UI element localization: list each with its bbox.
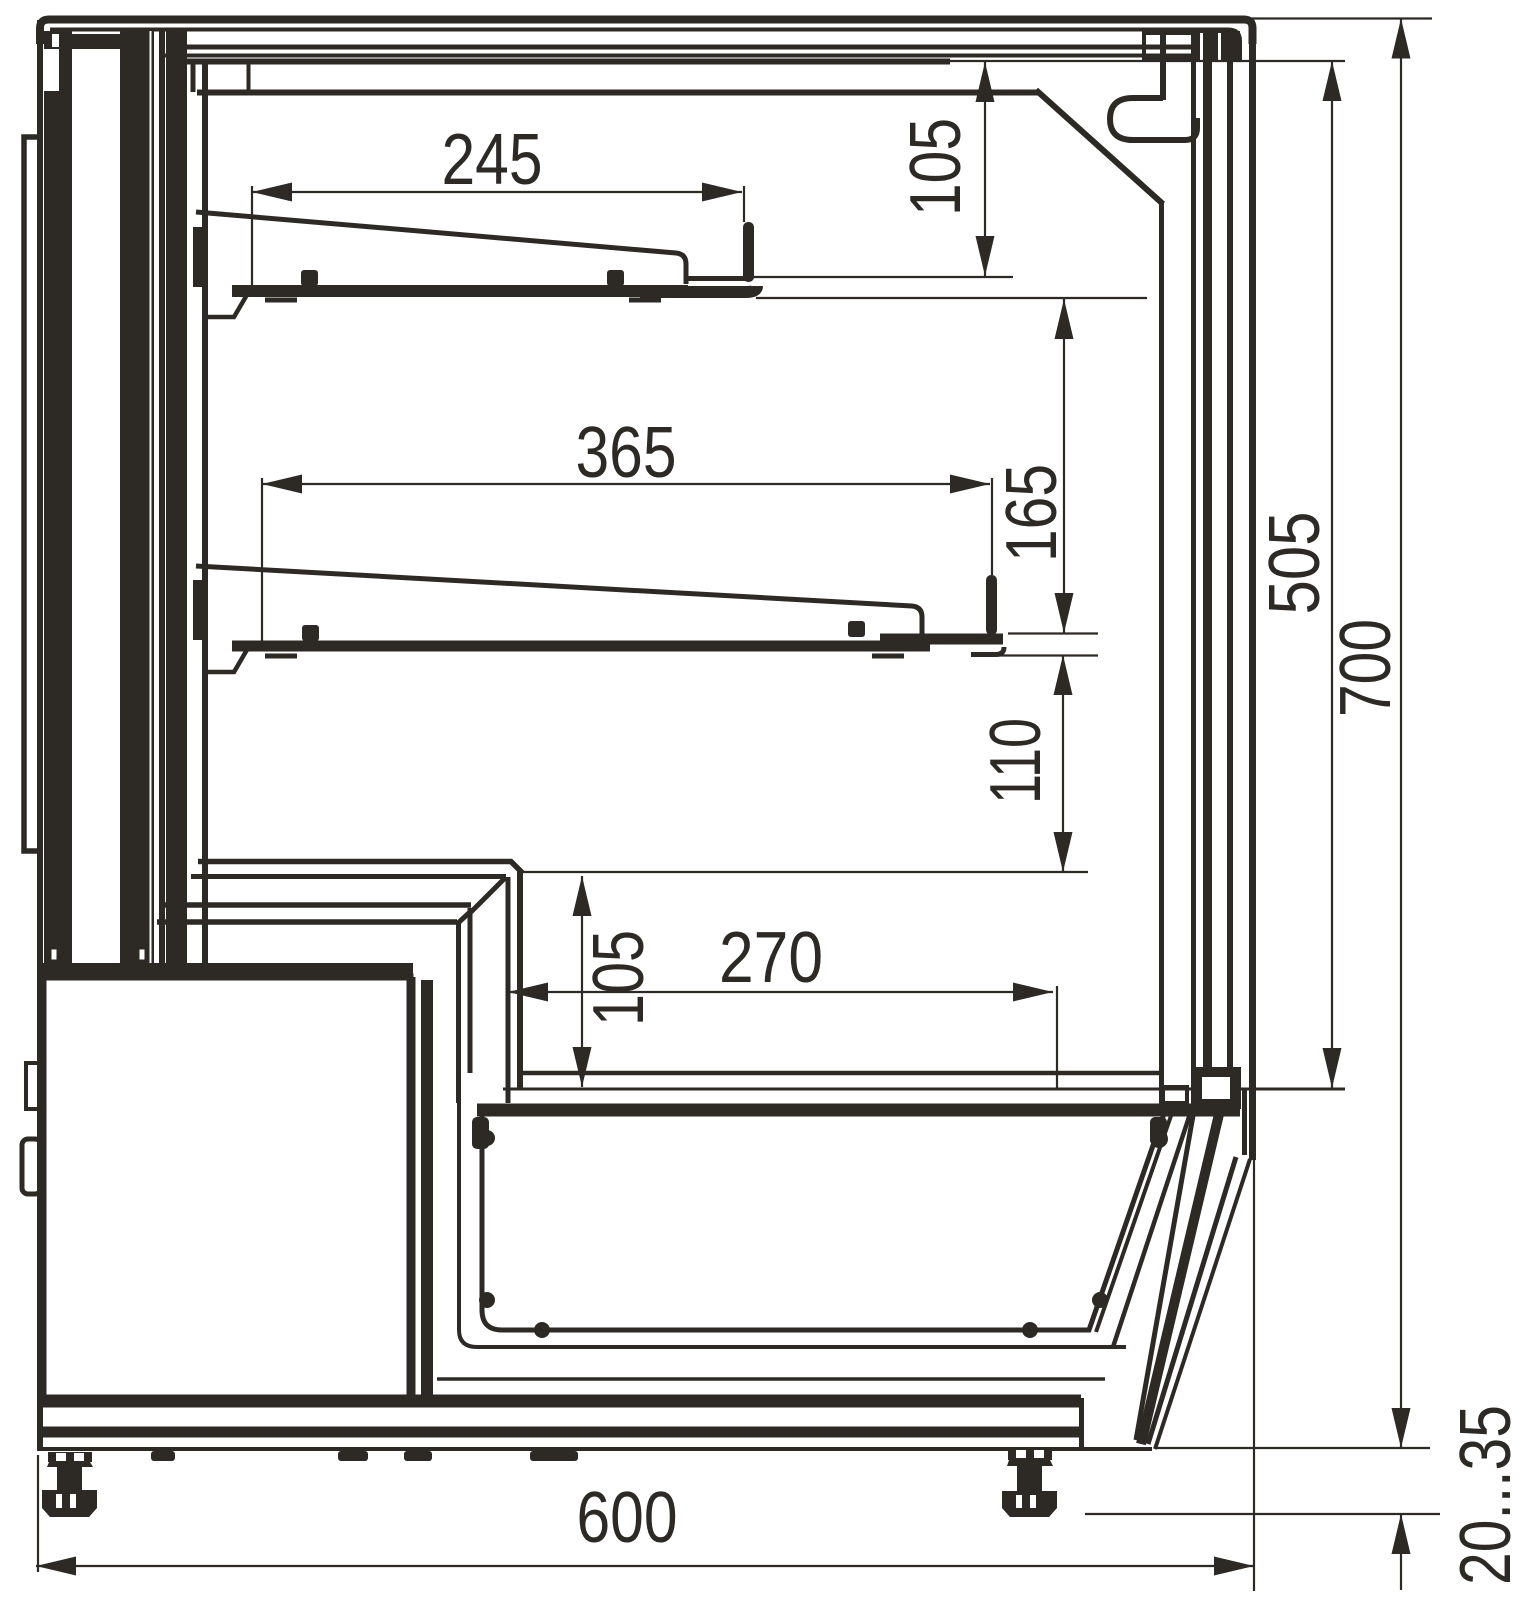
svg-text:110: 110 (976, 718, 1056, 804)
svg-text:245: 245 (442, 120, 543, 200)
svg-text:270: 270 (719, 918, 823, 998)
svg-text:700: 700 (1326, 619, 1406, 717)
svg-text:165: 165 (992, 464, 1072, 562)
svg-text:600: 600 (577, 1478, 678, 1558)
svg-text:505: 505 (1255, 512, 1335, 615)
svg-text:20...35: 20...35 (1446, 1405, 1526, 1585)
svg-text:105: 105 (579, 930, 659, 1026)
svg-text:365: 365 (576, 413, 677, 493)
svg-text:105: 105 (896, 118, 976, 216)
